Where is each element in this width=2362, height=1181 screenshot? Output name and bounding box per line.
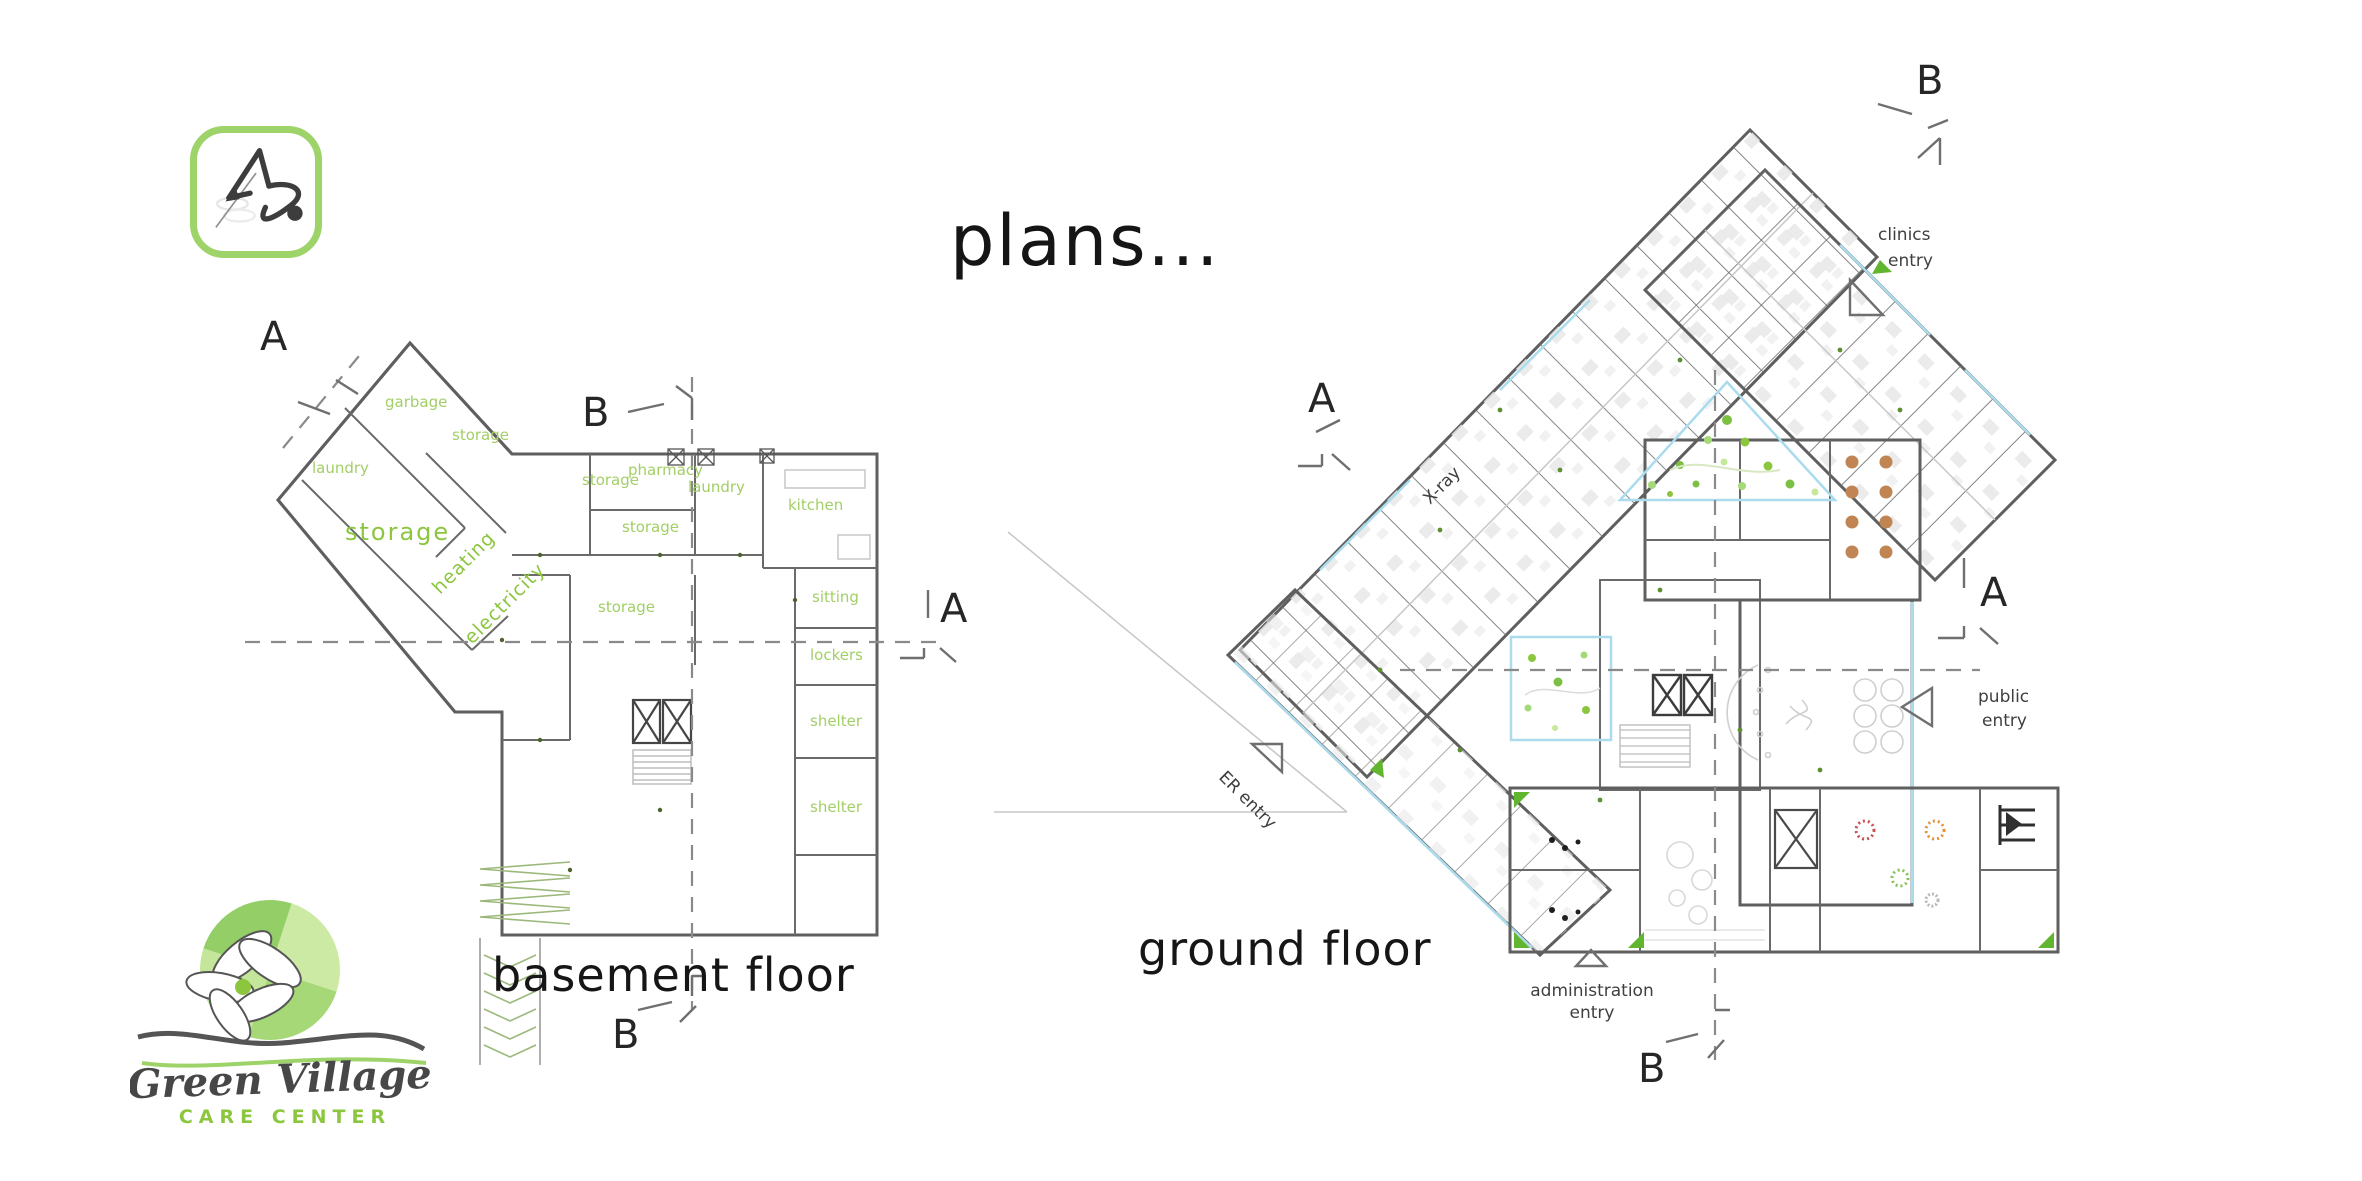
brand-logo: Green Village CARE CENTER	[130, 875, 430, 1135]
section-cut-icon	[1878, 104, 1948, 165]
room-label: storage	[345, 518, 450, 546]
public-lobby	[1740, 600, 1912, 905]
entry-label-clinics-2: entry	[1888, 251, 1933, 271]
room-label: pharmacy	[628, 461, 703, 479]
section-cut-icon	[628, 386, 692, 420]
admin-garden	[1645, 842, 1765, 940]
ground-caption: ground floor	[1138, 922, 1432, 976]
elevator-core	[1653, 675, 1712, 715]
admin-partitions	[1510, 788, 2058, 952]
room-label: kitchen	[788, 496, 843, 514]
section-marker-b-top: B	[582, 390, 609, 436]
entry-label-clinics-1: clinics	[1878, 225, 1931, 245]
section-marker-b-bottom: B	[1638, 1046, 1665, 1092]
section-marker-a-left: A	[1308, 376, 1336, 422]
entry-label-admin-1: administration	[1530, 981, 1653, 1001]
activity-room-decor	[1856, 821, 1944, 906]
section-marker-b-bottom: B	[612, 1012, 639, 1058]
square-courtyard	[1511, 637, 1611, 740]
room-label: garbage	[385, 393, 447, 411]
section-marker-a-right: A	[1980, 570, 2008, 616]
section-marker-b-top: B	[1916, 58, 1943, 104]
stethoscope-compass-icon	[197, 133, 315, 251]
courtyard-planting	[1525, 652, 1601, 732]
stethoscope-bell	[287, 206, 302, 221]
entry-label-public-2: entry	[1982, 711, 2027, 731]
admin-stair-icon	[2000, 805, 2035, 845]
pencil-sketch	[216, 173, 256, 227]
basement-caption: basement floor	[492, 948, 855, 1002]
brand-tagline: CARE CENTER	[179, 1106, 391, 1128]
room-label: lockers	[810, 646, 863, 664]
main-stairs	[1620, 725, 1690, 767]
room-label: laundry	[312, 459, 369, 477]
entry-label-admin-2: entry	[1570, 1003, 1615, 1023]
room-label: laundry	[688, 478, 745, 496]
room-label: electricity	[460, 559, 550, 649]
lobby-furniture	[1727, 665, 1903, 760]
room-label: shelter	[810, 798, 863, 816]
room-label: storage	[622, 518, 679, 536]
brand-name: Green Village	[130, 1051, 430, 1109]
room-label: shelter	[810, 712, 863, 730]
section-marker-a-topleft: A	[260, 314, 288, 360]
presentation-slide: plans...	[0, 0, 2362, 1181]
room-label: storage	[598, 598, 655, 616]
storage-x-room	[1775, 810, 1817, 868]
section-cut-icon	[1666, 1010, 1730, 1058]
section-cut-icon	[298, 380, 358, 414]
section-cut-icon	[1298, 420, 1350, 470]
elevator-core	[633, 700, 691, 743]
entry-label-er: ER entry	[1214, 767, 1280, 833]
kitchen-counter	[785, 470, 870, 559]
triangle-arrow-icon-public	[1902, 688, 1932, 726]
app-logo	[190, 126, 322, 258]
room-label: sitting	[812, 588, 859, 606]
entry-label-public-1: public	[1978, 687, 2029, 707]
room-label: storage	[452, 426, 509, 444]
section-marker-a-right: A	[940, 586, 968, 632]
stairs	[633, 750, 691, 784]
triangle-arrow-icon-er	[1252, 744, 1282, 772]
